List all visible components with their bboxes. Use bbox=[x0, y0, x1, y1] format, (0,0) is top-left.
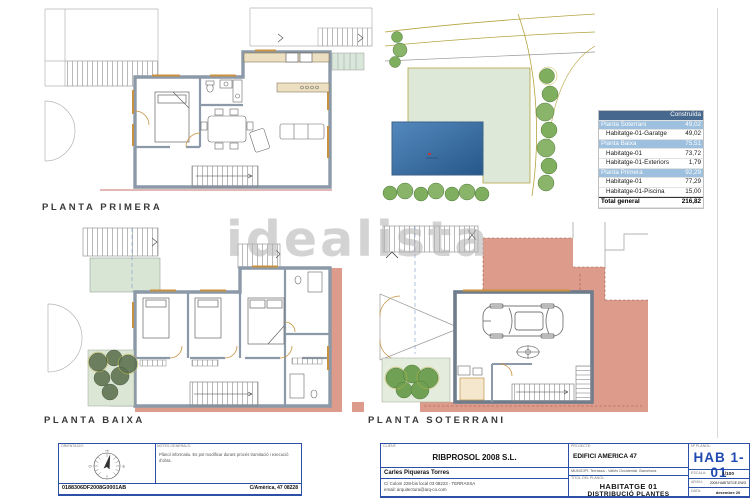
baixa-top-stairs bbox=[83, 228, 158, 256]
project-cell: PROJECTE: EDIFICI AMERICA 47 bbox=[569, 444, 688, 467]
architect-address-cell: C/ Colom 228-bis local 03 08223 - TERRAS… bbox=[381, 478, 568, 496]
sheet-title-cell: TÍTOL DEL PLÀNOL: HABITATGE 01 DISTRIBUC… bbox=[569, 475, 688, 496]
neighbour-stair-strip bbox=[332, 53, 364, 70]
file-value: 2008.HABITATGE.DWG bbox=[707, 481, 749, 485]
compass-rose-icon: N S E O bbox=[59, 450, 155, 482]
scale-label: ESCALA: bbox=[689, 472, 707, 476]
neighbour-gate-arcs bbox=[48, 304, 82, 372]
compass-o: O bbox=[89, 464, 92, 469]
planta-primera-drawing bbox=[40, 6, 595, 202]
table-header-row: Construïda bbox=[599, 111, 703, 121]
trees-bottom bbox=[383, 183, 489, 201]
reference-number: 0188306DF2008G0001AB bbox=[62, 485, 126, 491]
date-cell: DATA: desembre 20 bbox=[689, 487, 749, 496]
architectural-plan-sheet: Construïda Planta Soterrani49,02 Habitat… bbox=[0, 0, 750, 500]
access-ramp bbox=[380, 294, 455, 360]
file-label: ARXIU: bbox=[689, 481, 707, 485]
table-row: Planta Soterrani49,02 bbox=[599, 121, 703, 131]
planta-primera-label: PLANTA PRIMERA bbox=[42, 202, 162, 213]
garden-vegetation bbox=[88, 350, 138, 406]
table-row: Habitatge-01-Exteriors1,79 bbox=[599, 159, 703, 169]
planta-soterrani-label: PLANTA SOTERRANI bbox=[368, 415, 506, 426]
date-label: DATA: bbox=[689, 490, 707, 494]
idealista-watermark: idealista bbox=[226, 211, 490, 268]
municipality-cell: MUNICIPI: Terrassa - Vallès Occidental, … bbox=[569, 467, 688, 475]
table-header-label: Construïda bbox=[670, 112, 701, 118]
table-row: Habitatge-01-Garatge49,02 bbox=[599, 130, 703, 140]
unexcavated-strip-right bbox=[330, 268, 342, 407]
sheet-title-line2: DISTRIBUCIÓ PLANTES bbox=[569, 491, 688, 498]
sheet-title-line1: HABITATGE 01 bbox=[569, 482, 688, 491]
site-address: C/Amèrica, 47 08228 bbox=[250, 485, 298, 491]
orientation-label: ORIENTACIÓ: bbox=[59, 444, 155, 449]
reference-row: 0188306DF2008G0001AB C/Amèrica, 47 08228 bbox=[59, 483, 301, 492]
sheet-number-column: Nº PLÀNOL: HAB 1- 01 ESCALA: 1/100 ARXIU… bbox=[689, 444, 749, 496]
table-row: Habitatge-01-Piscina15,00 bbox=[599, 188, 703, 198]
titleblock-right: CLIENT: RIBPROSOL 2008 S.L. Carles Pique… bbox=[380, 443, 750, 498]
trees-top bbox=[390, 32, 408, 68]
sheet-number-cell: Nº PLÀNOL: HAB 1- 01 bbox=[689, 444, 749, 469]
bed bbox=[155, 92, 189, 142]
client-cell: CLIENT: RIBPROSOL 2008 S.L. bbox=[381, 444, 568, 467]
area-summary-table: Construïda Planta Soterrani49,02 Habitat… bbox=[598, 110, 704, 209]
sheet-number-label: Nº PLÀNOL: bbox=[689, 444, 749, 449]
architect-email: email: arquitectura@arq-co.com bbox=[384, 487, 568, 493]
table-row: Planta Primera92,29 bbox=[599, 169, 703, 179]
client-name: RIBPROSOL 2008 S.L. bbox=[381, 453, 568, 462]
baixa-terrace bbox=[90, 258, 160, 292]
table-row: Habitatge-0173,72 bbox=[599, 149, 703, 159]
notes-text: Plànol informatiu. Es pot modificar dura… bbox=[155, 449, 301, 463]
architect-name: Carles Piqueras Torres bbox=[381, 468, 568, 476]
table-total-row: Total general216,82 bbox=[599, 197, 703, 208]
sheet-frame-line bbox=[717, 8, 718, 438]
baixa-bottom-stairs bbox=[190, 382, 258, 406]
table-row: Planta Baixa75,51 bbox=[599, 140, 703, 150]
compass-s: S bbox=[106, 481, 109, 483]
client-column: CLIENT: RIBPROSOL 2008 S.L. Carles Pique… bbox=[381, 444, 569, 496]
beds bbox=[143, 298, 284, 344]
architect-cell: Carles Piqueras Torres bbox=[381, 467, 568, 478]
neighbour-steps-outline bbox=[573, 222, 648, 267]
table-row: Habitatge-0177,29 bbox=[599, 178, 703, 188]
municipality-text: MUNICIPI: Terrassa - Vallès Occidental, … bbox=[569, 468, 688, 473]
notes-box: NOTES GENERALS: Plànol informatiu. Es po… bbox=[155, 444, 301, 483]
project-column: PROJECTE: EDIFICI AMERICA 47 MUNICIPI: T… bbox=[569, 444, 689, 496]
compass-box: ORIENTACIÓ: N S E O bbox=[59, 444, 156, 483]
unexcavated-strip-bottom bbox=[135, 407, 342, 412]
scale-value: 1/100 bbox=[707, 472, 749, 477]
planta-baixa-label: PLANTA BAIXA bbox=[44, 415, 145, 426]
neighbour-roof-outline bbox=[250, 8, 372, 46]
courtyard-vegetation bbox=[382, 358, 450, 402]
trees-right bbox=[536, 67, 558, 191]
compass-e: E bbox=[123, 464, 126, 469]
client-label: CLIENT: bbox=[381, 444, 568, 449]
project-name: EDIFICI AMERICA 47 bbox=[569, 449, 688, 460]
titleblock-left: ORIENTACIÓ: N S E O NOTES GENERALS: Plàn… bbox=[58, 443, 302, 496]
pool bbox=[392, 122, 483, 175]
compass-n: N bbox=[105, 450, 108, 453]
date-value: desembre 20 bbox=[707, 490, 749, 495]
sheet-title-label: TÍTOL DEL PLÀNOL: bbox=[569, 476, 688, 481]
primera-stairs bbox=[192, 166, 258, 187]
